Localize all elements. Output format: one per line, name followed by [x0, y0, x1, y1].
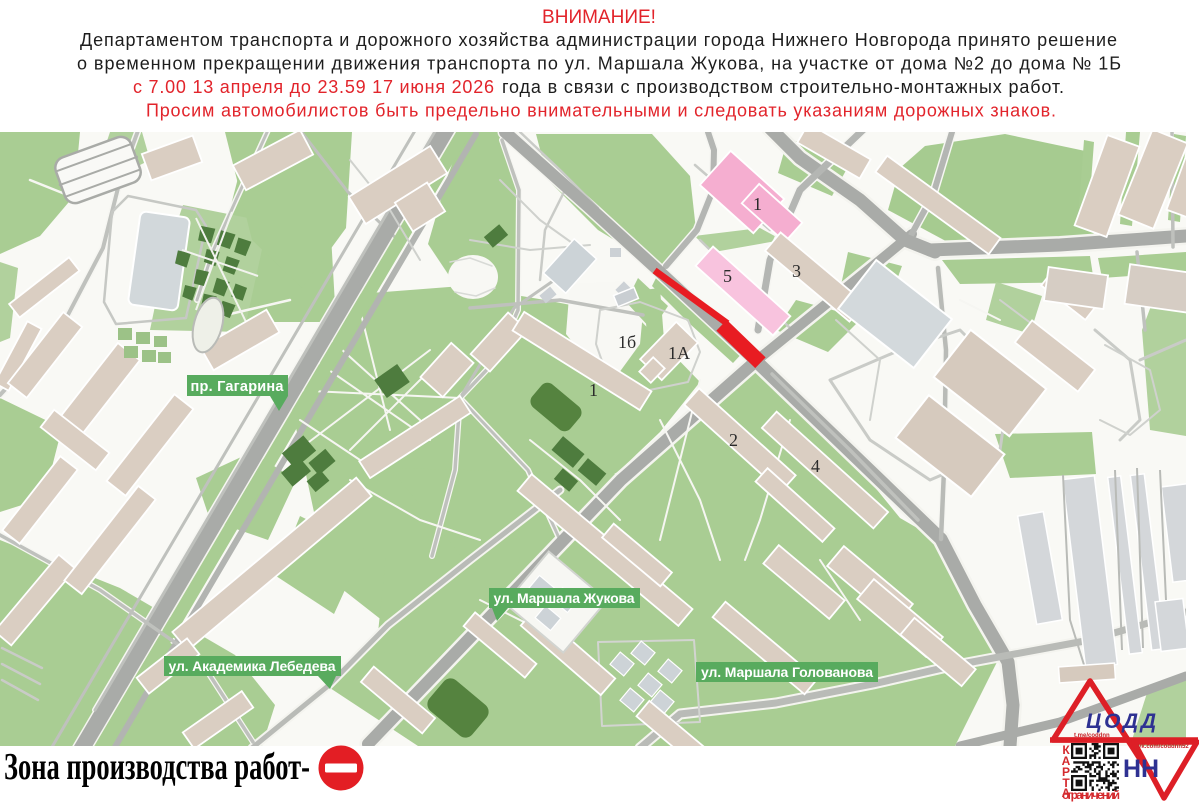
svg-text:ул. Маршала Голованова: ул. Маршала Голованова — [701, 664, 873, 680]
svg-text:ВНИМАНИЕ!: ВНИМАНИЕ! — [542, 7, 656, 28]
svg-text:пр. Гагарина: пр. Гагарина — [191, 379, 285, 395]
svg-text:4: 4 — [811, 456, 820, 476]
svg-text:Департаментом транспорта и дор: Департаментом транспорта и дорожного хоз… — [80, 30, 1117, 50]
svg-text:1б: 1б — [618, 332, 636, 352]
svg-text:Просим автомобилистов быть пре: Просим автомобилистов быть предельно вни… — [146, 101, 1056, 121]
svg-text:1А: 1А — [668, 343, 690, 363]
svg-text:t.me/coddnn: t.me/coddnn — [1074, 733, 1110, 739]
svg-text:ул. Академика Лебедева: ул. Академика Лебедева — [169, 658, 336, 674]
svg-text:Зона производства работ-: Зона производства работ- — [4, 746, 310, 788]
svg-text:ул. Маршала Жукова: ул. Маршала Жукова — [494, 590, 635, 606]
svg-text:НН: НН — [1123, 755, 1159, 783]
svg-text:с 7.00 13 апреля до 23.59 17 и: с 7.00 13 апреля до 23.59 17 июня 2026 — [133, 77, 494, 97]
svg-text:1: 1 — [753, 194, 762, 214]
svg-text:2: 2 — [729, 430, 738, 450]
svg-text:5: 5 — [723, 266, 732, 286]
svg-text:о временном прекращении движен: о временном прекращении движения транспо… — [77, 54, 1121, 74]
svg-text:3: 3 — [792, 261, 801, 281]
svg-text:1: 1 — [589, 380, 598, 400]
svg-text:года в связи с производством с: года в связи с производством строительно… — [502, 77, 1064, 97]
svg-text:vk.com/coddnn52: vk.com/coddnn52 — [1138, 744, 1189, 750]
svg-text:ограничений: ограничений — [1062, 788, 1120, 802]
